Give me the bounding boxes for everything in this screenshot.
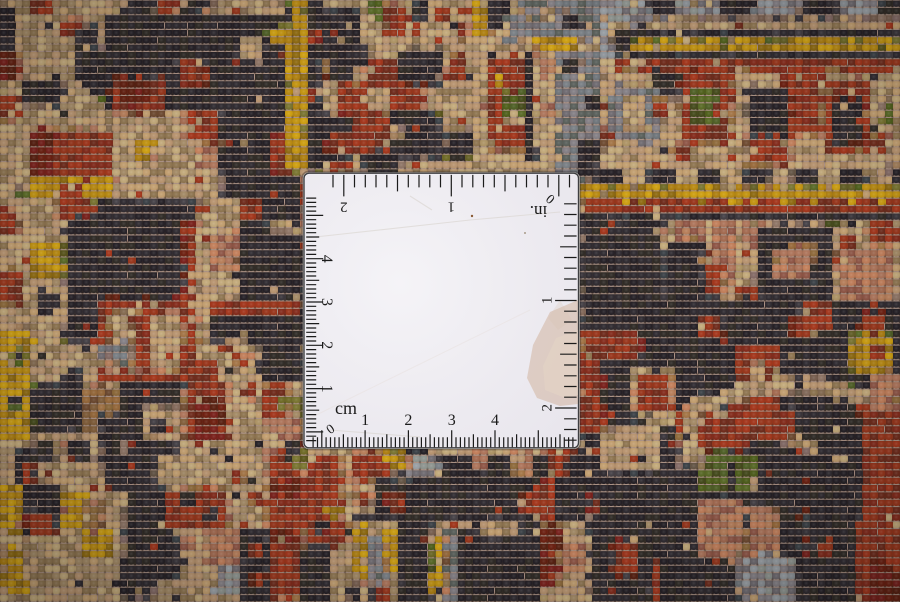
- svg-text:3: 3: [318, 298, 335, 306]
- svg-text:1: 1: [448, 199, 456, 215]
- svg-text:4: 4: [491, 412, 499, 429]
- svg-text:2: 2: [404, 412, 412, 429]
- svg-text:2: 2: [318, 341, 335, 349]
- svg-text:2: 2: [340, 199, 348, 215]
- svg-text:cm: cm: [335, 398, 357, 418]
- svg-text:1: 1: [540, 297, 556, 305]
- svg-text:1: 1: [318, 385, 335, 393]
- svg-text:2: 2: [540, 404, 556, 412]
- svg-text:in.: in.: [530, 202, 547, 221]
- svg-text:3: 3: [448, 412, 456, 429]
- svg-text:1: 1: [361, 412, 369, 429]
- svg-text:4: 4: [318, 255, 335, 263]
